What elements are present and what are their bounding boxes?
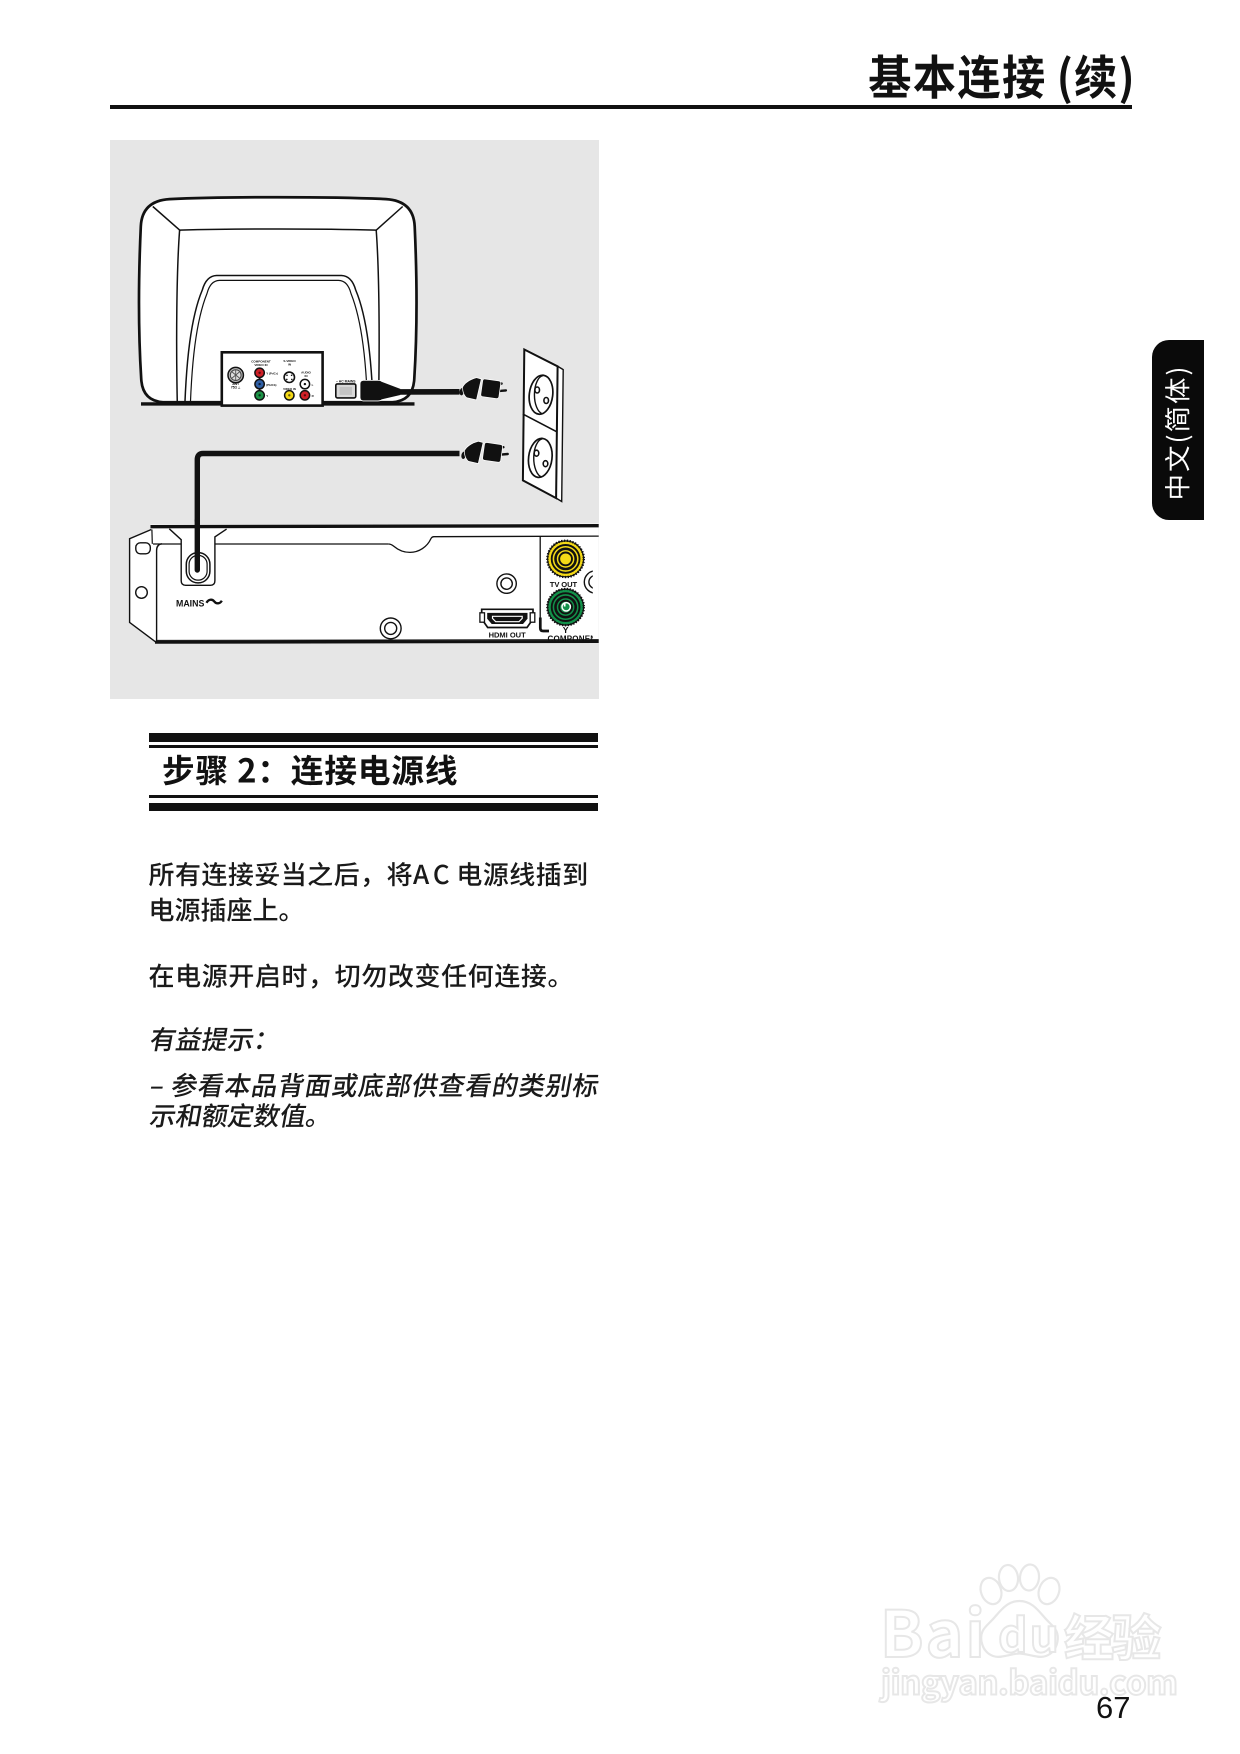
svg-text:MAINS: MAINS [176, 598, 204, 608]
svg-text:(Pb/Cb): (Pb/Cb) [266, 382, 276, 386]
svg-text:Y: Y [266, 394, 268, 398]
svg-text:75Ω ⊥: 75Ω ⊥ [231, 385, 241, 389]
svg-text:HDMI OUT: HDMI OUT [489, 630, 526, 639]
svg-text:VIDEO IN: VIDEO IN [254, 362, 267, 366]
svg-text:TV OUT: TV OUT [550, 580, 578, 589]
svg-text:Y (Pr/Cr): Y (Pr/Cr) [266, 371, 278, 375]
svg-text:IN: IN [305, 373, 308, 377]
svg-text:IN: IN [288, 362, 291, 366]
svg-text:L: L [312, 382, 314, 386]
